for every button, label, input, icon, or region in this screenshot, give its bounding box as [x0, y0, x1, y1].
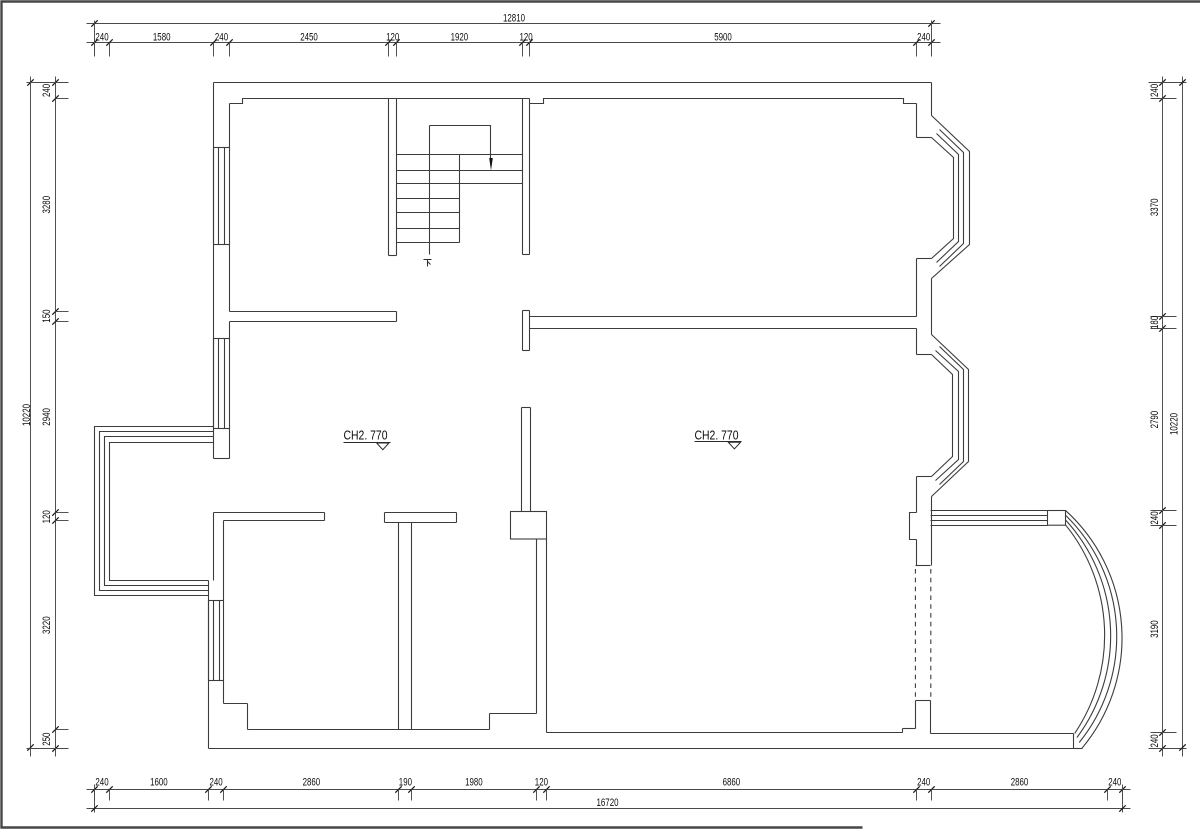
svg-text:240: 240 — [1149, 84, 1161, 97]
svg-text:250: 250 — [41, 733, 53, 746]
svg-text:2940: 2940 — [41, 408, 53, 426]
svg-text:6860: 6860 — [723, 777, 741, 789]
svg-text:240: 240 — [917, 777, 930, 789]
svg-text:120: 120 — [535, 777, 548, 789]
svg-text:1920: 1920 — [451, 32, 469, 44]
svg-text:2860: 2860 — [303, 777, 321, 789]
svg-text:190: 190 — [399, 777, 412, 789]
svg-text:3370: 3370 — [1149, 199, 1161, 217]
svg-text:240: 240 — [210, 777, 223, 789]
svg-text:240: 240 — [41, 84, 53, 97]
svg-text:240: 240 — [95, 777, 108, 789]
svg-text:240: 240 — [1149, 734, 1161, 747]
svg-text:240: 240 — [215, 32, 228, 44]
svg-text:2790: 2790 — [1149, 411, 1161, 429]
svg-text:2860: 2860 — [1011, 777, 1029, 789]
svg-text:1600: 1600 — [150, 777, 168, 789]
svg-text:240: 240 — [95, 32, 108, 44]
svg-text:12810: 12810 — [503, 12, 525, 24]
svg-text:240: 240 — [1108, 777, 1121, 789]
svg-text:150: 150 — [41, 310, 53, 323]
svg-text:3280: 3280 — [41, 196, 53, 214]
svg-text:3190: 3190 — [1149, 620, 1161, 638]
svg-text:120: 120 — [520, 32, 533, 44]
svg-text:180: 180 — [1149, 316, 1161, 329]
svg-text:10220: 10220 — [1169, 413, 1181, 435]
svg-text:2450: 2450 — [300, 32, 318, 44]
svg-text:240: 240 — [1149, 511, 1161, 524]
svg-text:CH2. 770: CH2. 770 — [695, 429, 739, 443]
svg-text:10220: 10220 — [21, 404, 33, 426]
svg-text:240: 240 — [917, 32, 930, 44]
svg-text:CH2. 770: CH2. 770 — [344, 429, 388, 443]
svg-text:120: 120 — [41, 510, 53, 523]
svg-text:1980: 1980 — [465, 777, 483, 789]
svg-text:5900: 5900 — [714, 32, 732, 44]
svg-text:1580: 1580 — [153, 32, 171, 44]
svg-text:120: 120 — [386, 32, 399, 44]
svg-text:3220: 3220 — [41, 616, 53, 634]
svg-text:16720: 16720 — [597, 797, 619, 809]
